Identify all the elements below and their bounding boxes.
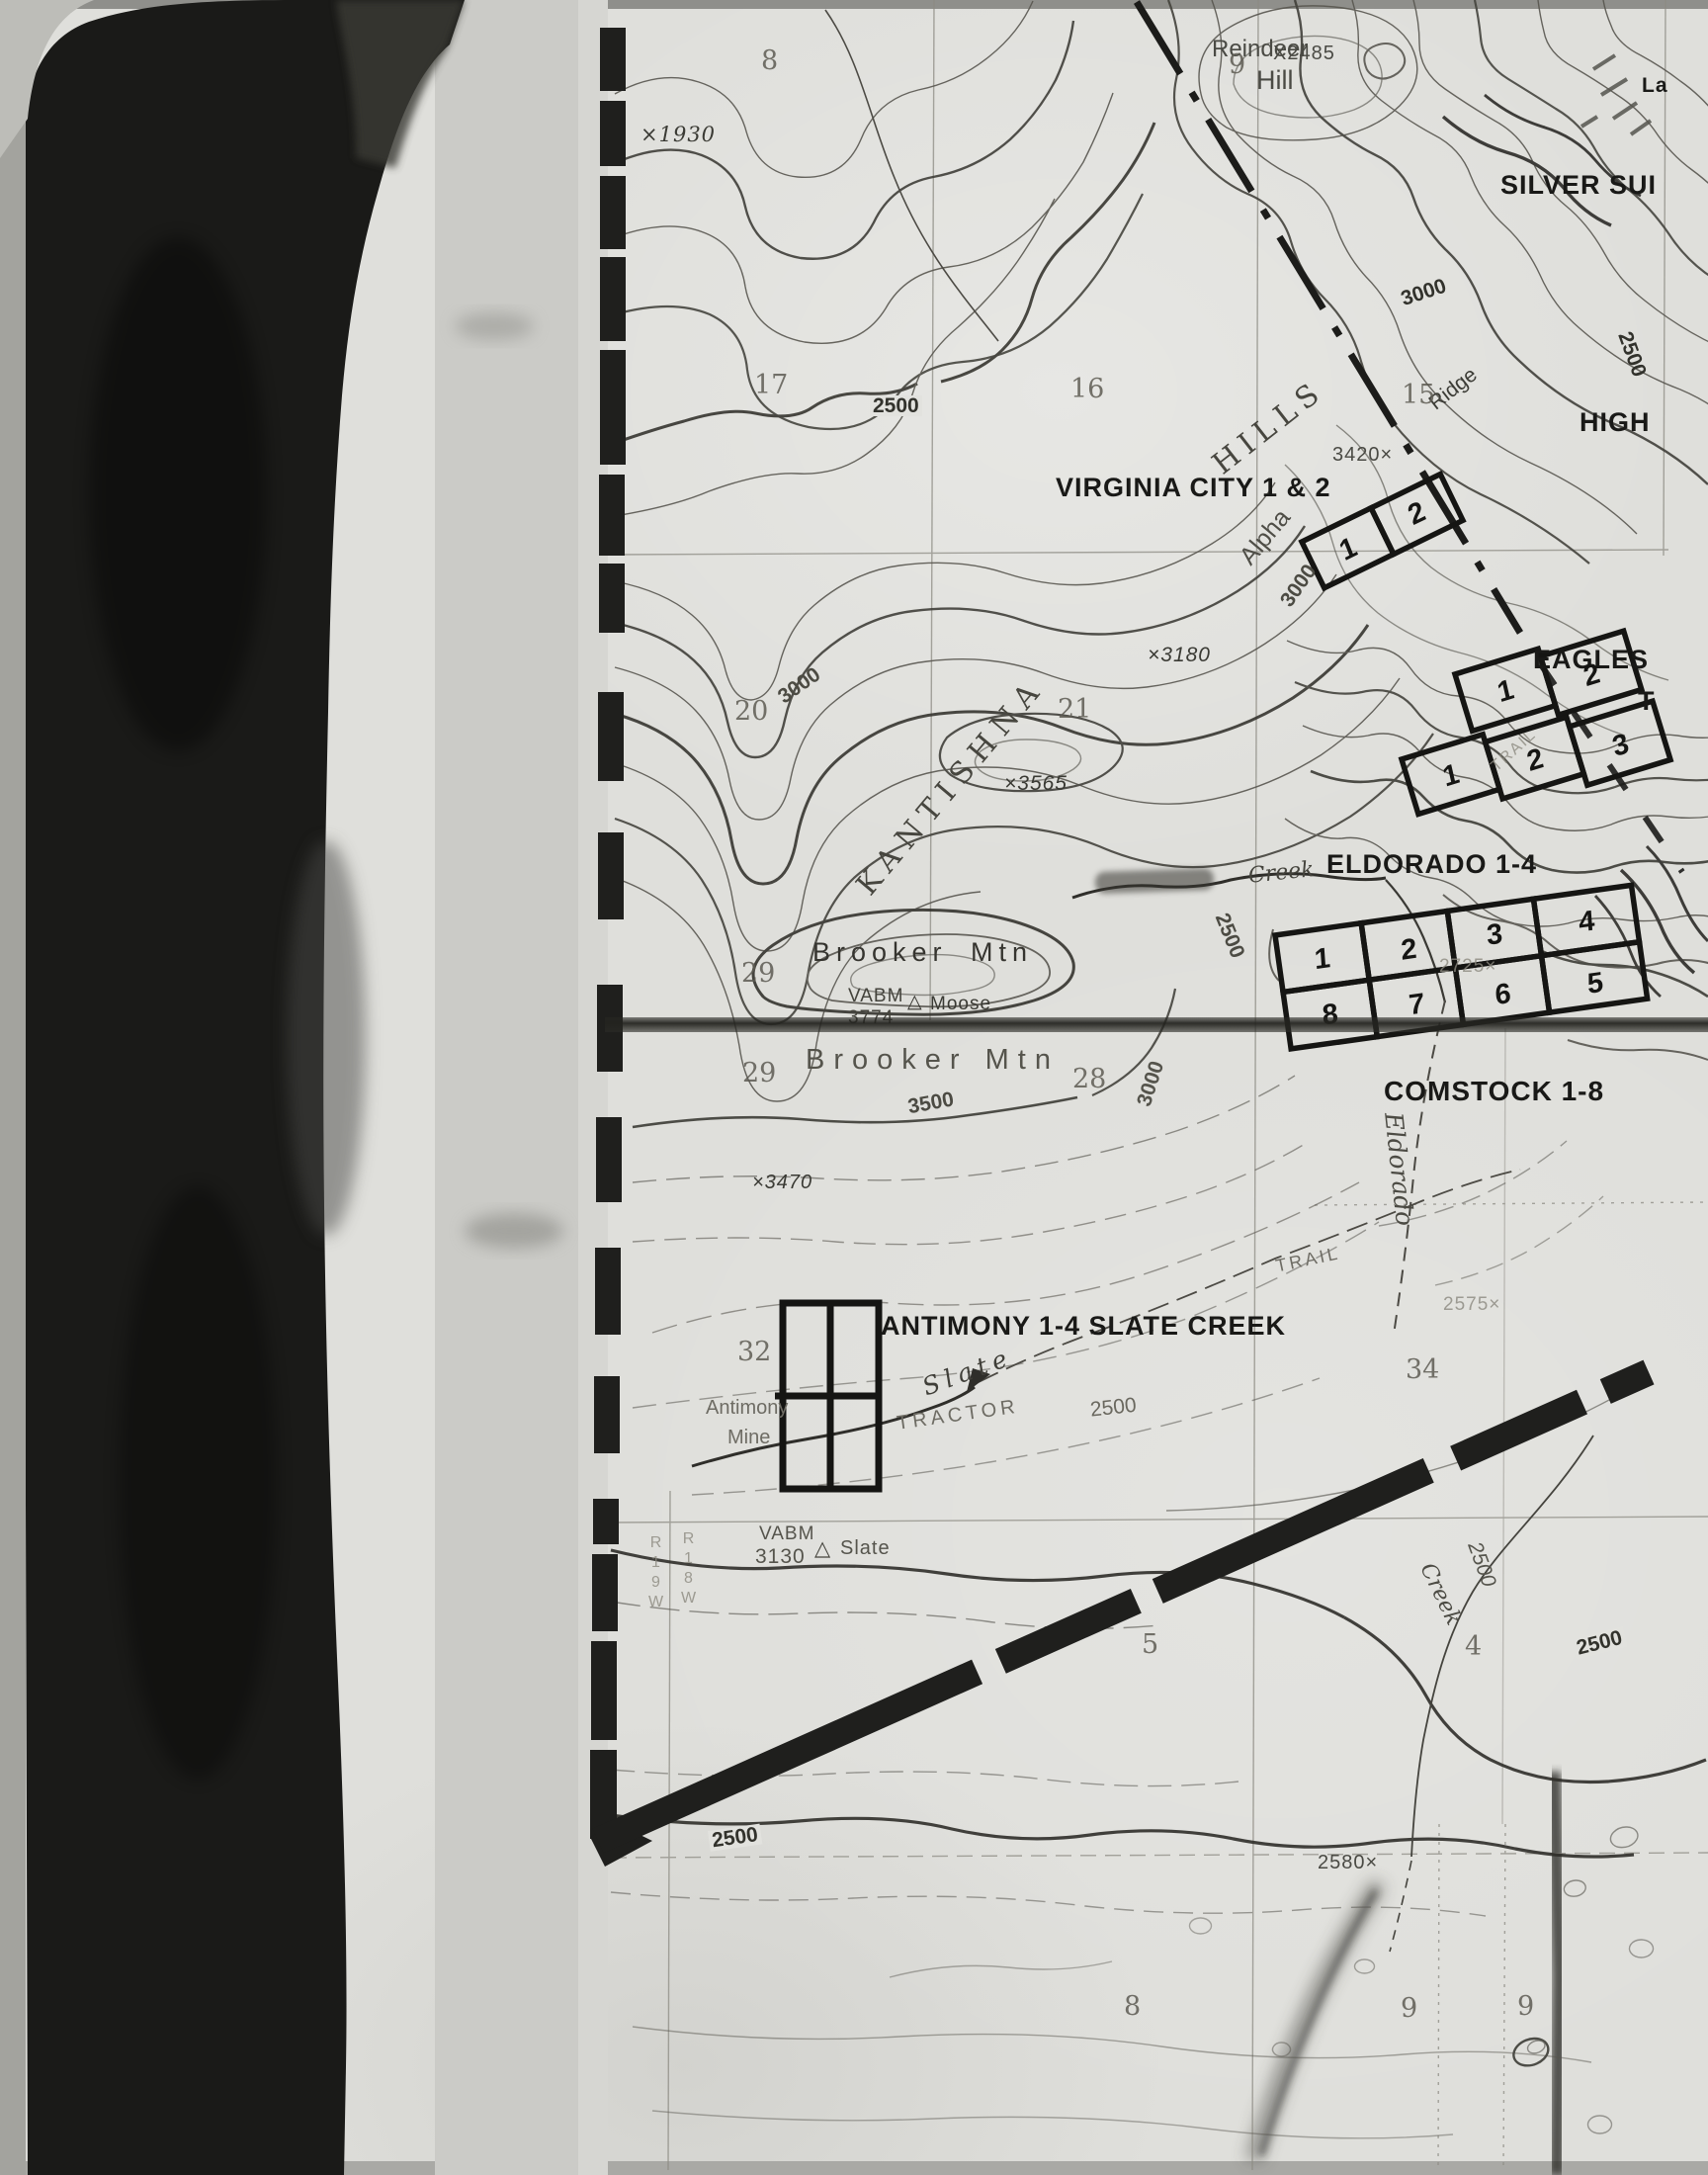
claim-number: 2	[1580, 657, 1603, 694]
label-hill: Hill	[1256, 67, 1294, 94]
stream-top	[825, 10, 998, 341]
section-29a: 29	[741, 960, 775, 987]
section-9b: 9	[1401, 1995, 1417, 2022]
spot-elev-1930: ×1930	[640, 125, 716, 145]
section-16: 16	[1070, 376, 1104, 402]
label-moose: Moose	[930, 995, 991, 1013]
label-antimony-mine-1: Antimony	[706, 1398, 788, 1418]
label-la: La	[1642, 75, 1668, 96]
claim-number: 1	[1494, 673, 1517, 710]
section-20: 20	[734, 698, 768, 725]
label-vabm-slate-elev: 3130	[755, 1546, 806, 1567]
benchmark-triangle-slate: △	[814, 1538, 830, 1559]
claim-box-antimony	[775, 1303, 879, 1489]
claim-number: 5	[1586, 967, 1604, 1001]
claim-number: 1	[1440, 758, 1463, 795]
contour-label-2500-top: 2500	[870, 395, 922, 416]
label-antimony: ANTIMONY 1-4 SLATE CREEK	[881, 1313, 1286, 1340]
claim-number: 2	[1404, 495, 1430, 533]
stream-slate-upper	[979, 1170, 1520, 1382]
section-28: 28	[1072, 1066, 1106, 1092]
range-tick-left: R19W	[647, 1534, 663, 1613]
label-comstock: COMSTOCK 1-8	[1384, 1078, 1604, 1105]
label-antimony-mine-2: Mine	[727, 1428, 770, 1447]
claim-number: 1	[1335, 531, 1362, 568]
label-eldorado: ELDORADO 1-4	[1326, 851, 1537, 878]
section-9: 9	[1229, 51, 1245, 78]
label-brooker-mtn-lower: Brooker Mtn	[806, 1046, 1060, 1075]
benchmark-triangle-moose: △	[907, 993, 922, 1011]
claim-number: 3	[1609, 728, 1632, 764]
label-silver-summit: SILVER SUI	[1500, 172, 1657, 199]
spot-elev-3420: 3420×	[1332, 445, 1393, 465]
label-high: HIGH	[1580, 409, 1651, 436]
spot-elev-3470: ×3470	[752, 1173, 812, 1192]
spot-elev-2580: 2580×	[1318, 1853, 1378, 1872]
contour-label-2500-slate: 2500	[1086, 1394, 1141, 1420]
label-vabm-moose: VABM	[848, 987, 903, 1005]
section-8: 8	[761, 47, 778, 74]
section-4: 4	[1465, 1633, 1482, 1660]
section-29b: 29	[742, 1060, 776, 1087]
claim-number: 1	[1314, 942, 1331, 977]
section-5: 5	[1142, 1631, 1158, 1658]
spot-elev-3565: ×3565	[1004, 773, 1067, 794]
range-tick-right: R18W	[680, 1530, 696, 1609]
label-virginia-city: VIRGINIA CITY 1 & 2	[1056, 475, 1331, 501]
claim-number: 2	[1400, 933, 1417, 968]
claim-number: 6	[1494, 978, 1512, 1012]
label-vabm-slate: VABM	[759, 1524, 814, 1543]
section-17: 17	[754, 372, 788, 398]
claim-number: 3	[1486, 917, 1503, 952]
heavy-section-line	[605, 1017, 1708, 1032]
map-scan-page: 1 2 1 2 1 2 3 1 2 3 4 8 7 6 5 SILVER SUI…	[0, 0, 1708, 2175]
spot-elev-2485: X2485	[1273, 43, 1335, 63]
section-21: 21	[1058, 696, 1091, 723]
label-brooker-mtn-upper-2: Mtn	[971, 939, 1033, 966]
claim-number: 2	[1524, 742, 1547, 779]
section-8b: 8	[1124, 1993, 1141, 2020]
section-32: 32	[737, 1339, 771, 1365]
illegible-creek-name-smudge	[1095, 868, 1215, 894]
section-34: 34	[1406, 1356, 1439, 1383]
section-15: 15	[1402, 382, 1435, 408]
label-brooker-mtn-upper-1: Brooker	[812, 939, 948, 966]
spot-elev-2575: 2575×	[1443, 1295, 1500, 1314]
claim-number: 4	[1578, 905, 1595, 939]
section-9c: 9	[1517, 1993, 1534, 2020]
label-slate-benchmark: Slate	[840, 1538, 891, 1558]
spot-elev-3180: ×3180	[1148, 645, 1211, 665]
